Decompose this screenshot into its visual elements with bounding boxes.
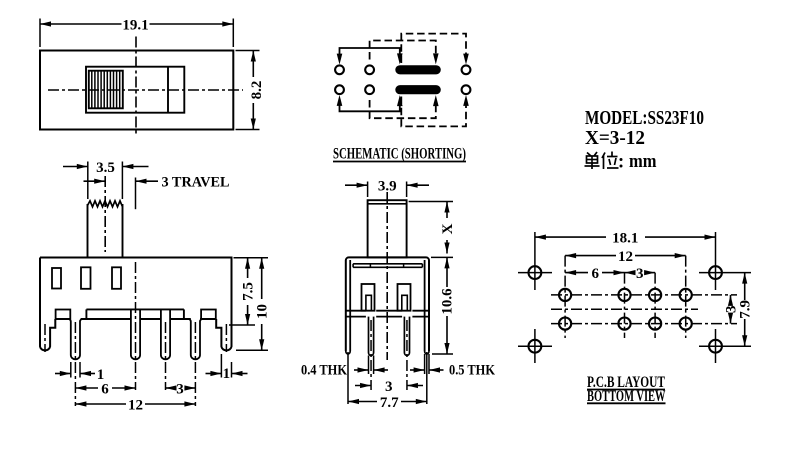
svg-text:7.9: 7.9 — [738, 300, 754, 319]
svg-text:0.5 THK: 0.5 THK — [449, 363, 495, 379]
svg-text:BOTTOM VIEW: BOTTOM VIEW — [587, 388, 666, 405]
svg-text:0.4 THK: 0.4 THK — [301, 363, 347, 379]
svg-text:6: 6 — [591, 266, 599, 282]
svg-text:12: 12 — [128, 397, 143, 413]
svg-text:MODEL:SS23F10: MODEL:SS23F10 — [585, 107, 704, 129]
svg-text:12: 12 — [618, 249, 633, 265]
svg-text:X: X — [440, 223, 456, 234]
svg-text:18.1: 18.1 — [612, 230, 638, 246]
svg-text:3: 3 — [176, 381, 184, 397]
svg-text:3: 3 — [636, 266, 644, 282]
svg-text:8.2: 8.2 — [249, 81, 265, 100]
svg-text:SCHEMATIC (SHORTING): SCHEMATIC (SHORTING) — [333, 146, 466, 163]
svg-text:mm: mm — [629, 151, 657, 172]
svg-text:3 TRAVEL: 3 TRAVEL — [162, 175, 230, 191]
svg-text:6: 6 — [101, 381, 109, 397]
svg-text:3: 3 — [385, 379, 393, 395]
svg-text:7.5: 7.5 — [241, 282, 257, 301]
svg-text:7.7: 7.7 — [380, 395, 399, 411]
svg-text:X=3-12: X=3-12 — [585, 127, 645, 149]
svg-text:3.5: 3.5 — [96, 160, 115, 176]
svg-text:10: 10 — [255, 304, 271, 319]
svg-text:10.6: 10.6 — [440, 288, 456, 315]
svg-text:19.1: 19.1 — [122, 17, 148, 33]
svg-text:1: 1 — [223, 366, 231, 382]
svg-text:3.9: 3.9 — [378, 179, 397, 195]
